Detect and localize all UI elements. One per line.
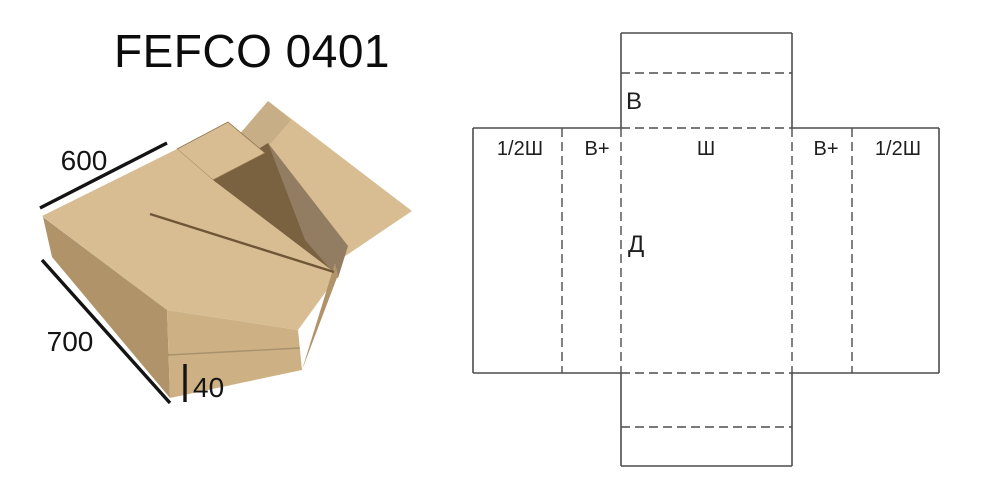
dieline-cut-lines: [473, 33, 939, 466]
panel-label-half-width-left: 1/2Ш: [497, 138, 543, 160]
label-depth: Д: [628, 231, 644, 258]
panel-label-half-width-right: 1/2Ш: [875, 138, 921, 160]
dieline-panel-labels: 1/2Ш В+ Ш В+ 1/2Ш: [497, 138, 921, 160]
dieline-fold-lines: [562, 73, 852, 427]
dieline-dim-labels: В Д: [626, 88, 644, 258]
panel-label-height-plus-right: В+: [813, 138, 838, 160]
panel-label-width: Ш: [697, 138, 715, 160]
label-top-flap-height: В: [626, 88, 642, 115]
panel-label-height-plus-left: В+: [584, 138, 609, 160]
fefco-dieline: 1/2Ш В+ Ш В+ 1/2Ш В Д: [0, 0, 1000, 500]
